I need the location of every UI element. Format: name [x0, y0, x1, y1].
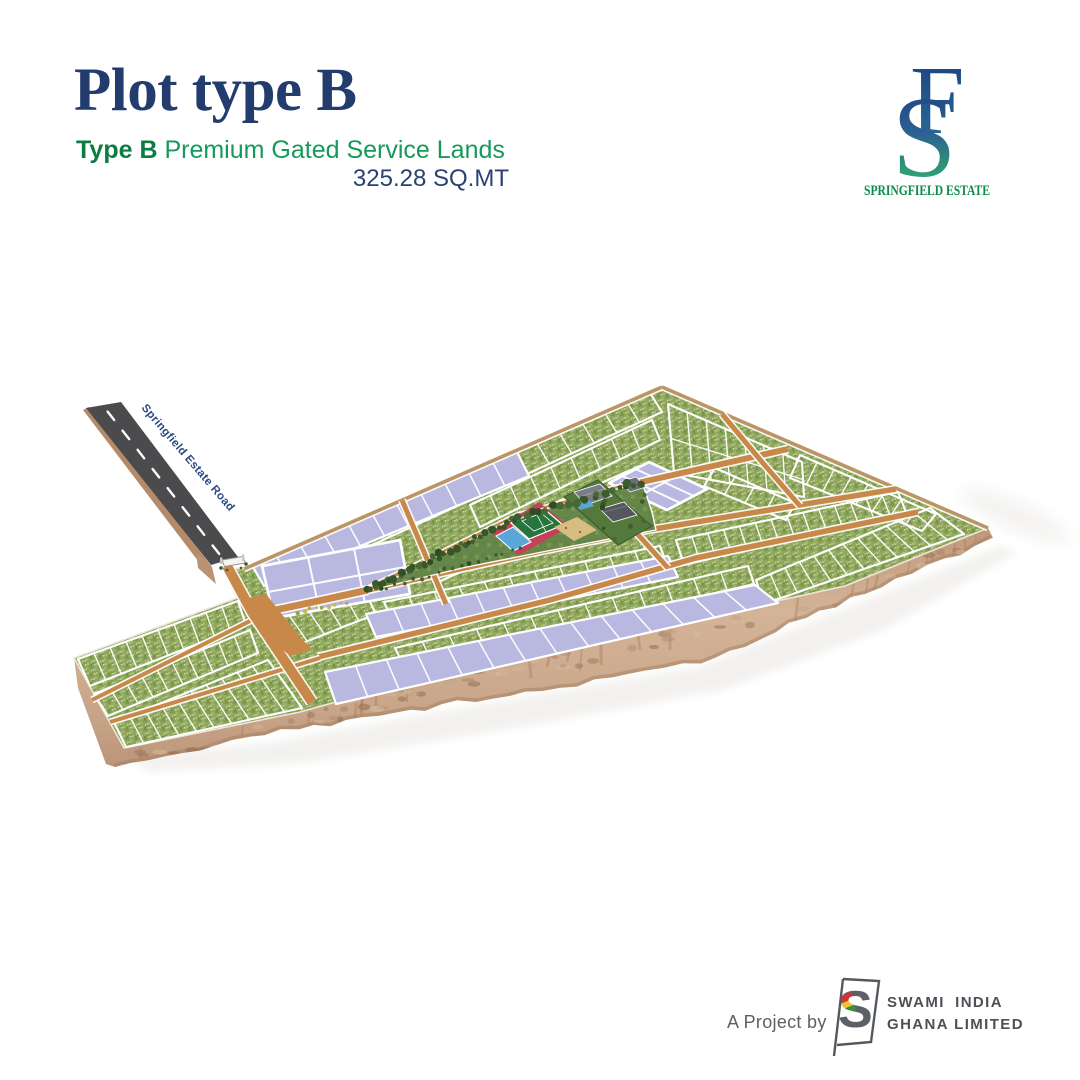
svg-text:GHANA LIMITED: GHANA LIMITED [887, 1016, 1024, 1033]
svg-text:SWAMI INDIA: SWAMI INDIA [887, 994, 1003, 1011]
svg-text:SPRINGFIELD ESTATE: SPRINGFIELD ESTATE [864, 183, 990, 199]
